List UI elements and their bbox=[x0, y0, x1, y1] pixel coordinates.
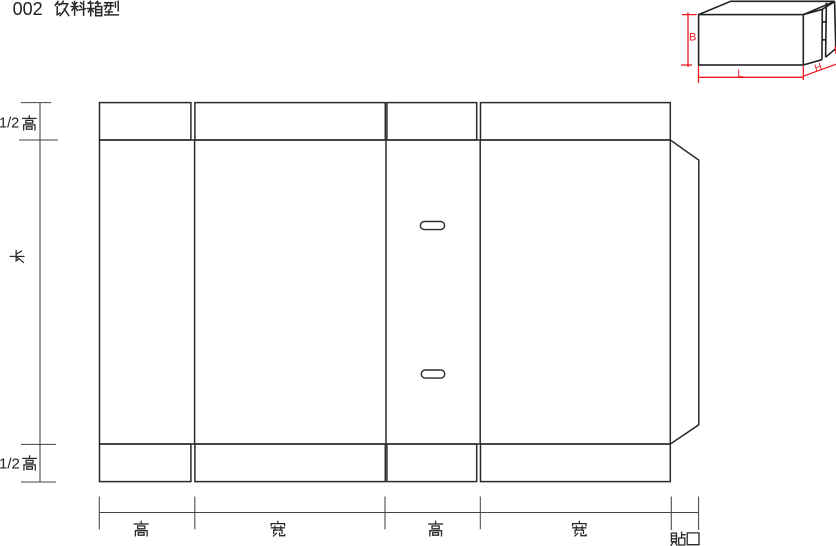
svg-text:002: 002 bbox=[13, 0, 43, 19]
svg-text:1/2: 1/2 bbox=[0, 455, 20, 472]
svg-text:1/2: 1/2 bbox=[0, 116, 19, 132]
svg-text:L: L bbox=[737, 68, 743, 80]
svg-text:B: B bbox=[689, 32, 696, 44]
